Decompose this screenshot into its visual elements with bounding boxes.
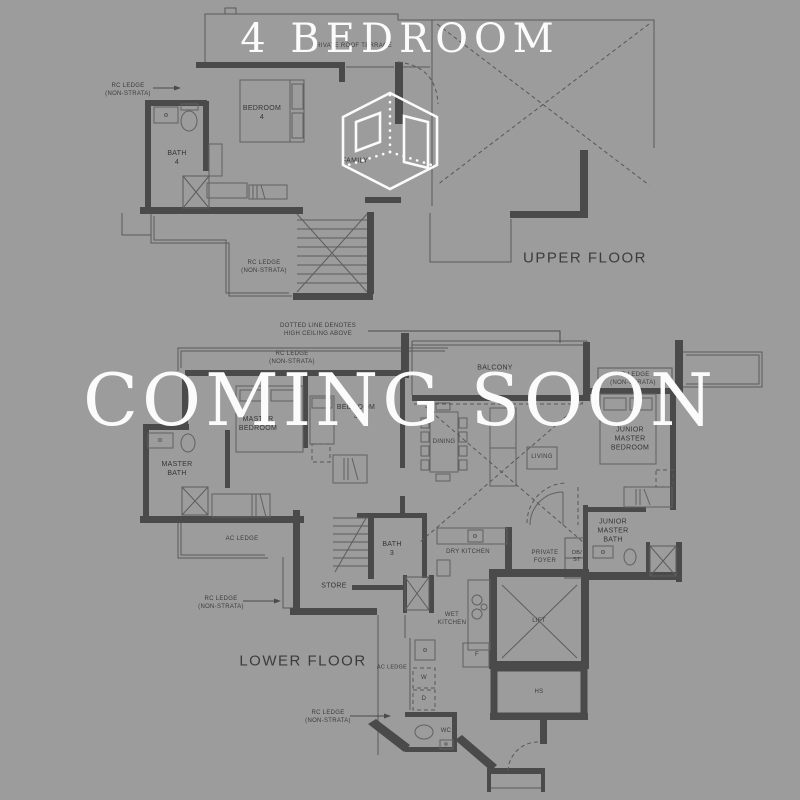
label-private-foyer: PRIVATE FOYER	[532, 550, 559, 566]
label-washer: W	[421, 675, 427, 683]
label-bedroom-4: BEDROOM 4	[243, 104, 281, 122]
label-rc-ledge-upper-left: RC LEDGE (NON-STRATA)	[105, 83, 151, 99]
label-high-ceiling-note: DOTTED LINE DENOTES HIGH CEILING ABOVE	[280, 323, 356, 339]
upper-shaft	[183, 176, 209, 208]
label-ac-ledge-left: AC LEDGE	[226, 536, 259, 544]
label-bath-4: BATH 4	[167, 149, 186, 167]
label-living: LIVING	[531, 454, 552, 462]
label-fridge: F	[475, 652, 479, 660]
label-master-bath: MASTER BATH	[162, 460, 193, 478]
coming-soon-banner: COMING SOON	[0, 358, 800, 442]
upper-fixtures	[154, 80, 304, 199]
logo-dotted-edge-left	[345, 152, 390, 166]
label-ac-ledge-bottom: AC LEDGE	[377, 664, 407, 671]
lower-floor-title: LOWER FLOOR	[239, 651, 366, 671]
page-title: 4 BEDROOM	[0, 16, 800, 62]
isometric-cube-logo	[338, 88, 442, 194]
label-junior-master-bath: JUNIOR MASTER BATH	[598, 517, 629, 544]
label-lift: LIFT	[532, 618, 546, 626]
label-rc-ledge-bottom: RC LEDGE (NON-STRATA)	[305, 710, 351, 726]
label-wet-kitchen: WET KITCHEN	[438, 612, 466, 628]
upper-floor-title: UPPER FLOOR	[523, 248, 647, 268]
label-rc-ledge-lower-midleft: RC LEDGE (NON-STRATA)	[198, 596, 244, 612]
label-dryer: D	[422, 696, 427, 704]
label-bath-3: BATH 3	[382, 540, 401, 558]
upper-stairs	[297, 214, 367, 292]
label-rc-ledge-upper-mid: RC LEDGE (NON-STRATA)	[241, 260, 287, 276]
label-dry-kitchen: DRY KITCHEN	[446, 549, 490, 557]
lower-stairs	[333, 518, 368, 572]
label-wc: WC	[441, 728, 452, 736]
label-db-st: DB/ ST	[572, 550, 582, 564]
logo-left-window	[356, 113, 380, 151]
label-hs: HS	[535, 689, 544, 697]
label-store: STORE	[321, 581, 347, 590]
floorplan-poster: RC LEDGE (NON-STRATA)PRIVATE ROOF TERRAC…	[0, 0, 800, 800]
